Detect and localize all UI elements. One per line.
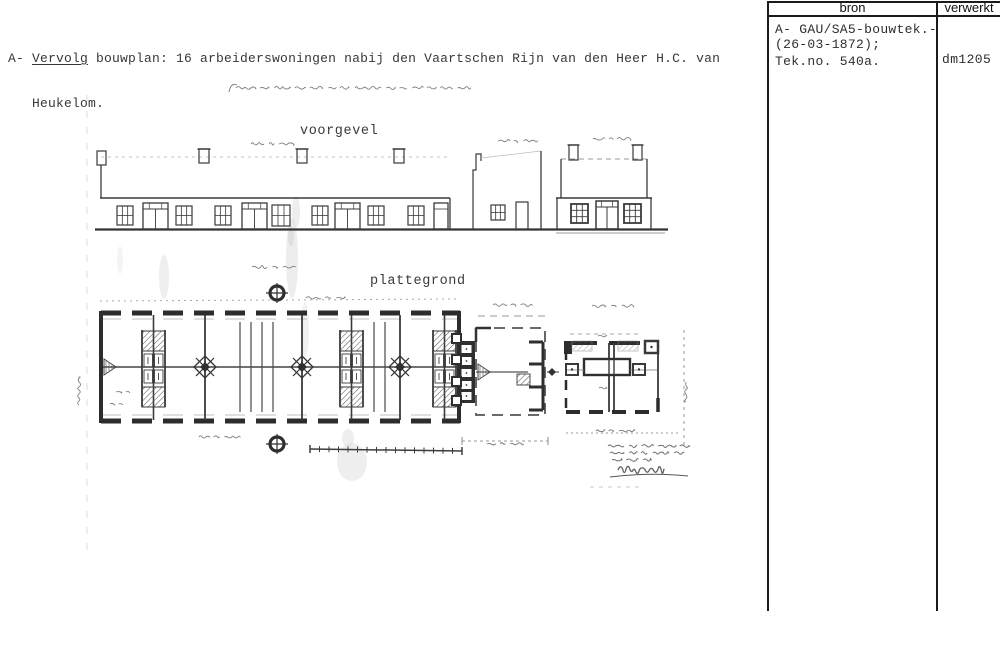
side-elevation-drawing <box>473 151 541 229</box>
table-header-underline <box>767 15 1000 17</box>
elevation-label: voorgevel <box>300 124 378 139</box>
archive-card-page: A- Vervolg bouwplan: 16 arbeiderswoninge… <box>0 0 1000 649</box>
title-underlined-word: Vervolg <box>32 51 88 66</box>
table-column-divider <box>936 1 938 611</box>
source-line: Tek.no. 540a. <box>775 54 937 69</box>
column-header-bron: bron <box>769 1 936 15</box>
table-left-border <box>767 1 769 611</box>
scale-bar <box>310 445 462 455</box>
gable-elevation-drawing <box>556 145 665 233</box>
processed-code: dm1205 <box>942 52 991 67</box>
card-title-line1: A- Vervolg bouwplan: 16 arbeiderswoninge… <box>8 51 720 66</box>
end-floorplan-left <box>452 316 559 445</box>
column-header-verwerkt: verwerkt <box>938 1 1000 15</box>
north-markers <box>266 283 288 454</box>
handwritten-note-and-signature <box>590 445 690 487</box>
source-reference: A- GAU/SA5-bouwtek.- (26-03-1872); Tek.n… <box>775 22 937 69</box>
source-line: A- GAU/SA5-bouwtek.- <box>775 22 937 37</box>
title-rest: bouwplan: 16 arbeiderswoningen nabij den… <box>88 51 720 66</box>
end-floorplan-right <box>564 330 687 445</box>
handwritten-drawing-title <box>229 84 471 92</box>
title-prefix: A- <box>8 51 32 66</box>
source-line: (26-03-1872); <box>775 37 937 52</box>
floorplan-label: plattegrond <box>370 274 466 289</box>
architectural-drawing-scan: voorgevel plattegrond <box>60 70 765 555</box>
main-floorplan-drawing <box>100 299 460 423</box>
